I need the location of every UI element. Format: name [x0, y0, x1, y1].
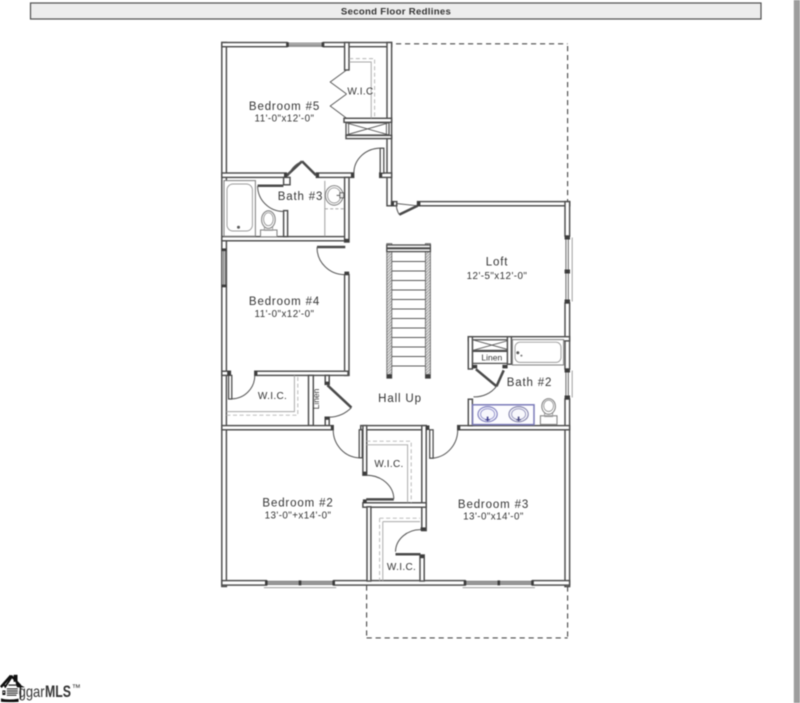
- svg-text:Bedroom #5: Bedroom #5: [249, 101, 320, 113]
- svg-text:13'-0"+x14'-0": 13'-0"+x14'-0": [265, 510, 332, 521]
- svg-text:Bedroom #3: Bedroom #3: [458, 499, 529, 511]
- svg-text:Bedroom #4: Bedroom #4: [249, 296, 320, 308]
- svg-text:Hall Up: Hall Up: [378, 393, 422, 405]
- svg-text:W.I.C.: W.I.C.: [387, 562, 416, 573]
- svg-text:Loft: Loft: [486, 257, 509, 269]
- svg-text:12'-5"x12'-0": 12'-5"x12'-0": [467, 271, 528, 282]
- svg-text:W.I.C.: W.I.C.: [374, 459, 403, 470]
- svg-text:ggar: ggar: [19, 684, 46, 701]
- svg-text:Second Floor Redlines: Second Floor Redlines: [341, 6, 451, 17]
- svg-text:W.I.C.: W.I.C.: [258, 391, 287, 402]
- svg-text:MLS: MLS: [45, 682, 71, 701]
- svg-text:11'-0"x12'-0": 11'-0"x12'-0": [255, 113, 315, 124]
- svg-text:Linen: Linen: [481, 353, 502, 363]
- svg-text:™: ™: [72, 683, 81, 693]
- svg-text:Bath #2: Bath #2: [507, 377, 553, 389]
- svg-text:11'-0"x12'-0": 11'-0"x12'-0": [255, 309, 315, 320]
- svg-text:13'-0"x14'-0": 13'-0"x14'-0": [463, 511, 524, 522]
- svg-text:W.I.C: W.I.C: [347, 87, 373, 98]
- svg-text:Bath #3: Bath #3: [278, 191, 324, 203]
- svg-text:Linen: Linen: [311, 388, 321, 409]
- svg-text:Bedroom #2: Bedroom #2: [262, 498, 333, 510]
